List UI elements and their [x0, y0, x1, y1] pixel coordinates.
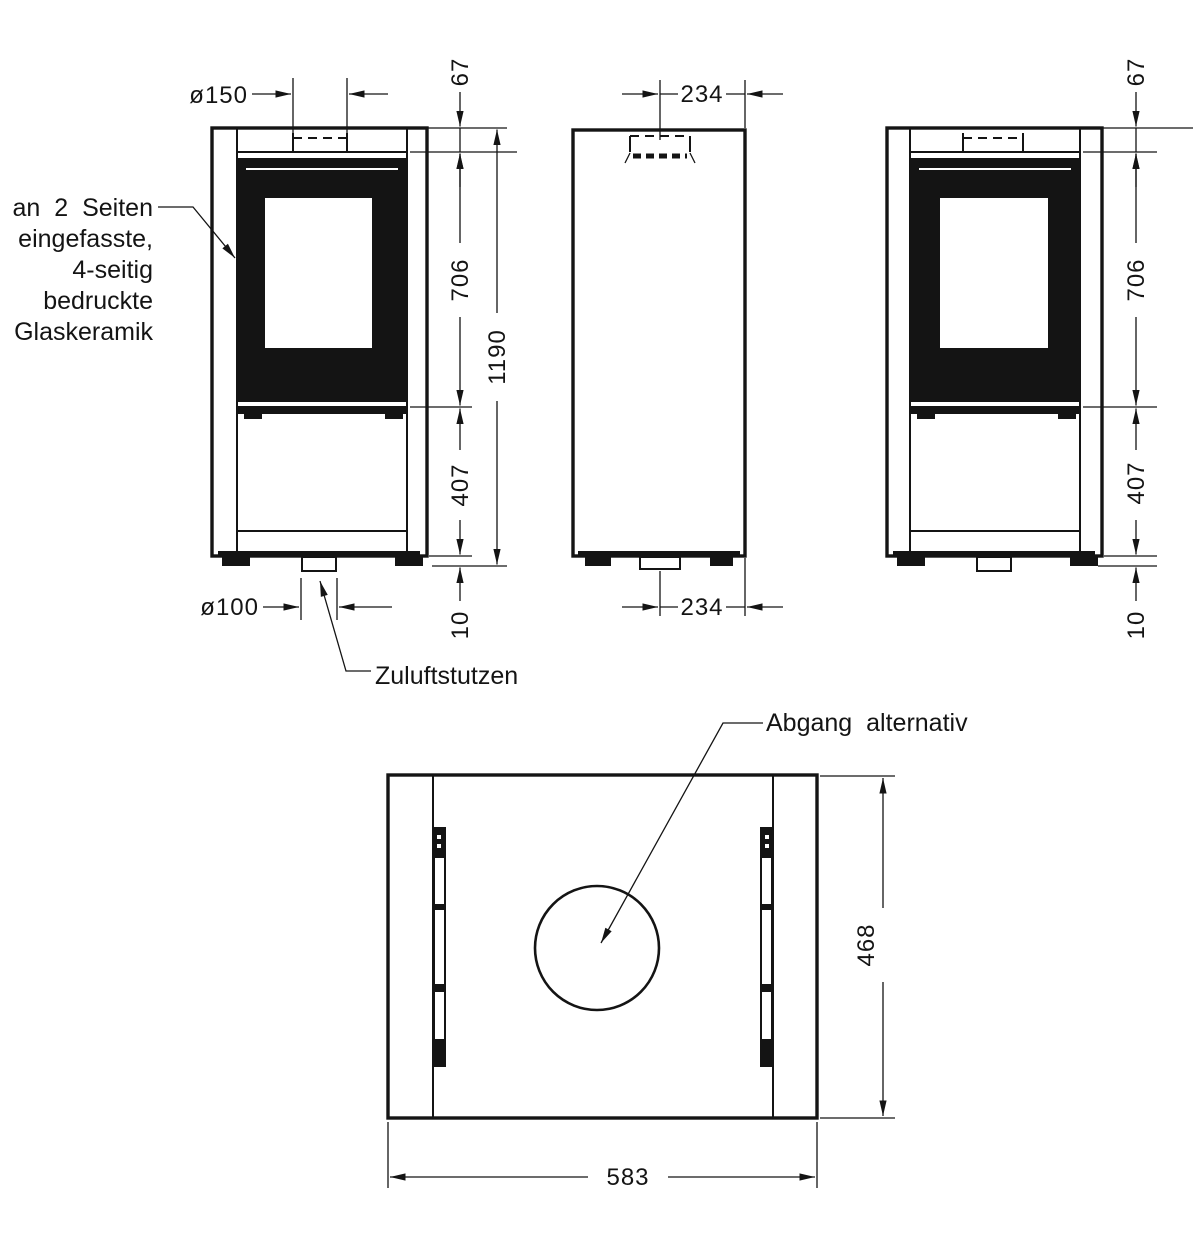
dim-inlet-diameter: ø100	[200, 578, 392, 621]
technical-drawing-page: an 2 Seiten eingefasste, 4-seitig bedruc…	[0, 0, 1200, 1249]
dim-top-offset-rear-text: 67	[1123, 58, 1150, 87]
glass-note-line-3: 4-seitig	[72, 256, 153, 284]
rear-door-tab-left	[917, 414, 935, 419]
glass-note-leader	[158, 207, 235, 258]
dim-glass-height-front: 706	[447, 154, 474, 406]
inlet-callout: Zuluftstutzen	[320, 581, 518, 690]
rear-foot-right	[1070, 557, 1098, 566]
front-glass-window	[265, 198, 372, 348]
dim-depth-text: 468	[853, 923, 880, 966]
front-inlet-stub	[302, 557, 336, 571]
dim-flue-rear-top-text: 234	[680, 81, 723, 108]
side-inlet-stub	[640, 557, 680, 569]
dim-glass-height-front-text: 706	[447, 258, 474, 301]
side-foot-rear	[710, 557, 733, 566]
inlet-label: Zuluftstutzen	[375, 662, 518, 690]
outlet-leader	[601, 723, 763, 943]
rear-door-bottom-rail	[910, 406, 1080, 414]
dim-depth: 468	[820, 776, 895, 1118]
dim-lower-height-front-text: 407	[447, 463, 474, 506]
front-door-tab-left	[244, 414, 262, 419]
front-foot-right	[395, 557, 423, 566]
dim-base-gap-front: 10	[447, 568, 474, 640]
dim-top-offset-front-text: 67	[447, 58, 474, 87]
front-foot-left	[222, 557, 250, 566]
glass-note-line-1: an 2 Seiten	[13, 194, 154, 222]
top-hinge-rail-left	[433, 827, 446, 1067]
rear-dimensions: 67 706 407 10	[1083, 58, 1193, 640]
rear-view	[887, 128, 1102, 571]
dim-glass-height-rear-text: 706	[1123, 258, 1150, 301]
dim-base-gap-front-text: 10	[447, 611, 474, 640]
top-flue-opening	[535, 886, 659, 1010]
rear-flue-collar	[963, 133, 1023, 152]
dim-flue-diameter-text: ø150	[189, 82, 248, 109]
dim-total-height: 1190	[484, 130, 511, 565]
inlet-leader	[320, 581, 371, 671]
dim-lower-height-rear-text: 407	[1123, 461, 1150, 504]
side-view: 234 234	[573, 80, 783, 621]
front-door-bottom-rail	[237, 406, 407, 414]
top-hinge-rail-right	[760, 827, 773, 1067]
top-body-outline	[388, 775, 817, 1118]
glass-note: an 2 Seiten eingefasste, 4-seitig bedruc…	[13, 194, 236, 346]
rear-inlet-stub	[977, 557, 1011, 571]
dim-width: 583	[388, 1122, 817, 1191]
outlet-callout: Abgang alternativ	[601, 709, 968, 943]
rear-foot-left	[897, 557, 925, 566]
glass-note-line-2: eingefasste,	[18, 225, 153, 253]
stove-dimension-drawing: an 2 Seiten eingefasste, 4-seitig bedruc…	[0, 0, 1200, 1249]
dim-base-gap-rear: 10	[1123, 568, 1150, 640]
front-door-tab-right	[385, 414, 403, 419]
dim-inlet-diameter-text: ø100	[200, 594, 259, 621]
top-view: Abgang alternativ 468 583	[388, 709, 968, 1191]
front-flue-collar	[293, 133, 347, 152]
outlet-label: Abgang alternativ	[766, 709, 968, 737]
glass-note-line-4: bedruckte	[43, 287, 153, 315]
dim-lower-height-front: 407	[447, 409, 474, 555]
dim-glass-height-rear: 706	[1123, 154, 1150, 406]
dim-total-height-text: 1190	[484, 329, 511, 385]
dim-width-text: 583	[606, 1164, 649, 1191]
front-view	[212, 128, 427, 571]
side-foot-front	[585, 557, 611, 566]
dim-base-gap-rear-text: 10	[1123, 611, 1150, 640]
side-flue-collar	[625, 136, 695, 163]
glass-note-line-5: Glaskeramik	[14, 318, 153, 346]
rear-door-tab-right	[1058, 414, 1076, 419]
dim-lower-height-rear: 407	[1123, 409, 1150, 555]
rear-glass-window	[940, 198, 1048, 348]
dim-flue-rear-bottom-text: 234	[680, 594, 723, 621]
side-body-outline	[573, 130, 745, 556]
